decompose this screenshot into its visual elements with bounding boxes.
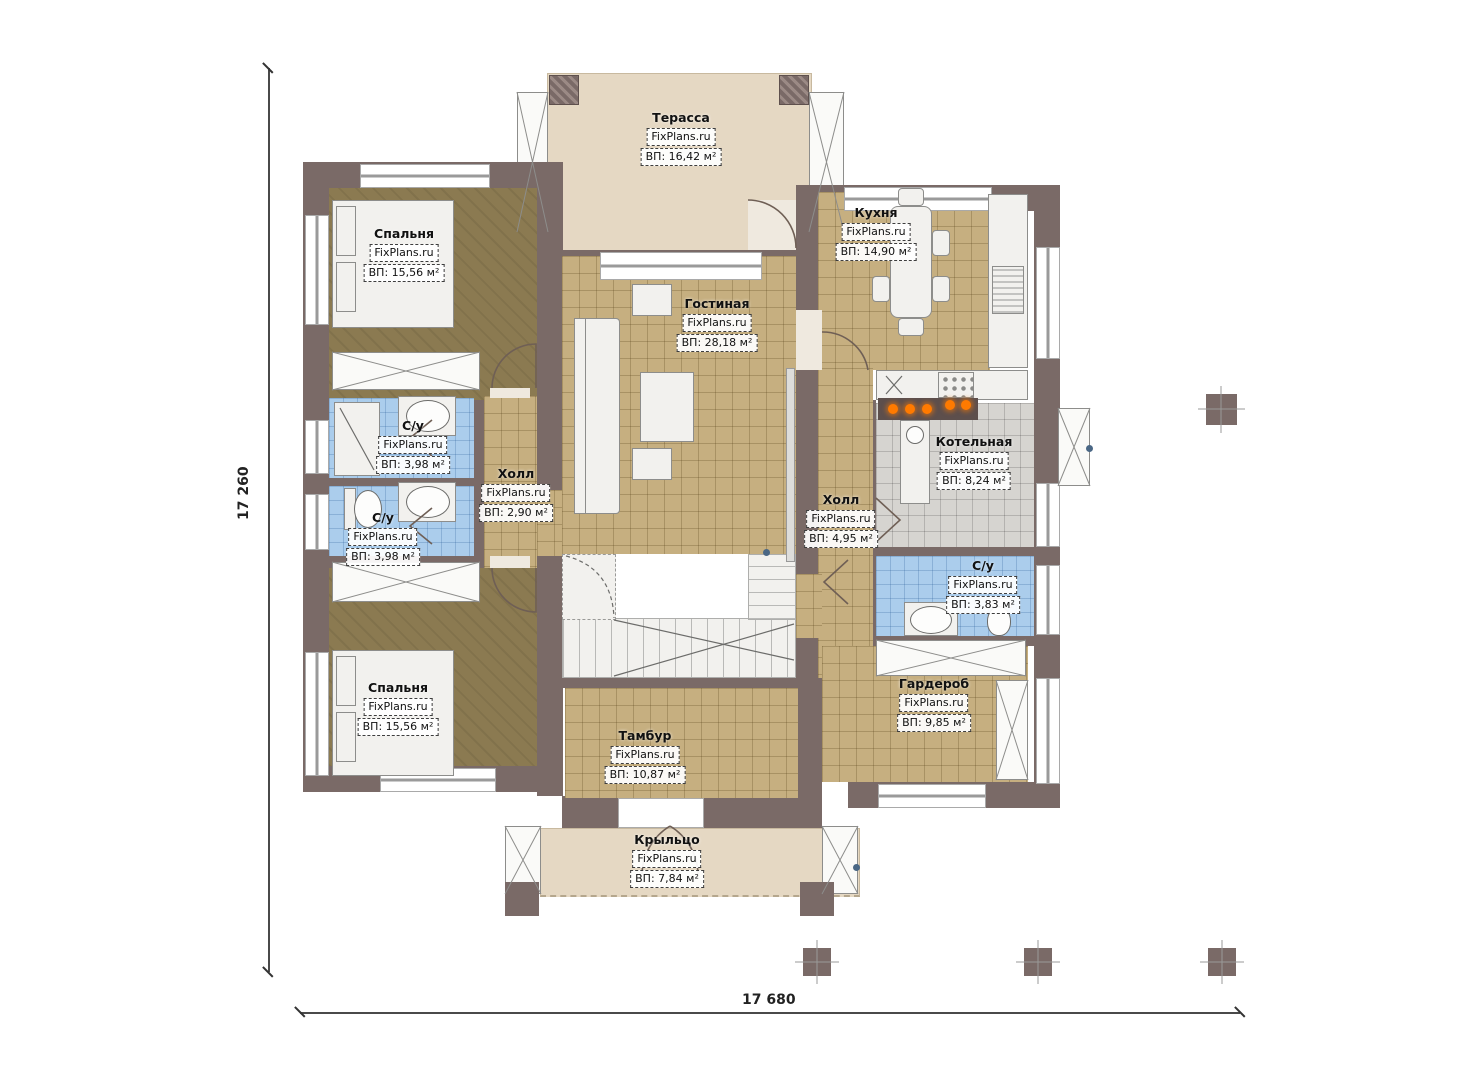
- room-brand: FixPlans.ru: [348, 528, 417, 546]
- chair-right1-kitchen: [932, 230, 950, 256]
- window-kitchen-right: [1036, 247, 1060, 359]
- door-entrance-gap: [618, 798, 704, 828]
- wardrobe-bedroom1: [332, 352, 480, 390]
- door-gap-bedroom1: [490, 388, 530, 398]
- room-brand: FixPlans.ru: [899, 694, 968, 712]
- window-boiler-right: [1036, 483, 1060, 547]
- room-name: Гардероб: [899, 676, 969, 692]
- wardrobe-bedroom2: [332, 562, 480, 602]
- window-bath2-left: [305, 494, 329, 550]
- label-tambur: Тамбур FixPlans.ru ВП: 10,87 м²: [605, 728, 686, 784]
- window-bedroom1-top: [360, 164, 490, 188]
- room-brand: FixPlans.ru: [948, 576, 1017, 594]
- room-area: ВП: 3,98 м²: [376, 456, 450, 474]
- room-area: ВП: 2,90 м²: [479, 504, 553, 522]
- room-name: С/у: [372, 510, 394, 526]
- dimension-left-value: 17 260: [236, 466, 252, 520]
- porch-pillar-right: [800, 882, 834, 916]
- pillow-bedroom2-b: [336, 712, 356, 762]
- coffee-table-living: [640, 372, 694, 442]
- room-name: Тамбур: [618, 728, 671, 744]
- room-area: ВП: 9,85 м²: [897, 714, 971, 732]
- room-area: ВП: 3,98 м²: [346, 548, 420, 566]
- window-wardrobe-bottom: [878, 784, 986, 808]
- label-bath2: С/у FixPlans.ru ВП: 3,98 м²: [346, 510, 420, 566]
- burner-4: [945, 400, 955, 410]
- room-name: С/у: [402, 418, 424, 434]
- room-name: Гостиная: [684, 296, 749, 312]
- room-name: Кухня: [854, 205, 897, 221]
- pillar-bottom-1: [803, 948, 831, 976]
- porch-pillar-left: [505, 882, 539, 916]
- room-brand: FixPlans.ru: [841, 223, 910, 241]
- room-name: Терасса: [652, 110, 710, 126]
- staircase-landing: [562, 554, 616, 620]
- label-hall-small: Холл FixPlans.ru ВП: 2,90 м²: [479, 466, 553, 522]
- ref-dot-porch: [853, 864, 860, 871]
- boiler-gauge: [906, 426, 924, 444]
- ref-dot-right-door: [1086, 445, 1093, 452]
- room-area: ВП: 14,90 м²: [836, 243, 917, 261]
- wardrobe-cabinet-right: [996, 680, 1028, 780]
- floor-plan-canvas: Терасса FixPlans.ru ВП: 16,42 м² Спальня…: [0, 0, 1474, 1080]
- opening-living-hall-right: [796, 574, 822, 638]
- chair-top-kitchen: [898, 188, 924, 206]
- room-name: Крыльцо: [634, 832, 699, 848]
- room-name: Холл: [498, 466, 535, 482]
- label-bedroom1: Спальня FixPlans.ru ВП: 15,56 м²: [364, 226, 445, 282]
- window-bedroom1-left: [305, 215, 329, 325]
- room-brand: FixPlans.ru: [632, 850, 701, 868]
- label-living: Гостиная FixPlans.ru ВП: 28,18 м²: [677, 296, 758, 352]
- room-area: ВП: 3,83 м²: [946, 596, 1020, 614]
- pillar-bottom-3: [1208, 948, 1236, 976]
- pillow-bedroom1-a: [336, 206, 356, 256]
- door-gap-terrace: [748, 200, 796, 250]
- window-bedroom2-left: [305, 652, 329, 776]
- room-brand: FixPlans.ru: [481, 484, 550, 502]
- label-hall-right: Холл FixPlans.ru ВП: 4,95 м²: [804, 492, 878, 548]
- label-porch: Крыльцо FixPlans.ru ВП: 7,84 м²: [630, 832, 704, 888]
- shower-bath1: [334, 402, 380, 476]
- staircase-lower-flight: [562, 618, 796, 678]
- dishwasher-kitchen: [938, 372, 974, 398]
- room-brand: FixPlans.ru: [646, 128, 715, 146]
- staircase-upper-flight: [748, 554, 796, 620]
- room-name: С/у: [972, 558, 994, 574]
- pillar-bottom-2: [1024, 948, 1052, 976]
- room-area: ВП: 15,56 м²: [358, 718, 439, 736]
- side-table-bottom-living: [632, 448, 672, 480]
- terrace-column-left: [549, 75, 579, 105]
- burner-3: [922, 404, 932, 414]
- burner-5: [961, 400, 971, 410]
- chair-right2-kitchen: [932, 276, 950, 302]
- room-name: Спальня: [374, 226, 434, 242]
- door-gap-bedroom2: [490, 556, 530, 568]
- burner-2: [905, 404, 915, 414]
- wall-boiler-bath3: [876, 546, 1034, 556]
- pillow-bedroom2-a: [336, 656, 356, 706]
- room-area: ВП: 8,24 м²: [937, 472, 1011, 490]
- label-bath1: С/у FixPlans.ru ВП: 3,98 м²: [376, 418, 450, 474]
- burner-1: [888, 404, 898, 414]
- wardrobe-cabinet-top: [876, 640, 1026, 676]
- room-area: ВП: 4,95 м²: [804, 530, 878, 548]
- chair-bottom-kitchen: [898, 318, 924, 336]
- room-area: ВП: 28,18 м²: [677, 334, 758, 352]
- window-bath3-right: [1036, 565, 1060, 635]
- room-area: ВП: 16,42 м²: [641, 148, 722, 166]
- side-table-top-living: [632, 284, 672, 316]
- room-brand: FixPlans.ru: [806, 510, 875, 528]
- window-wardrobe-right: [1036, 678, 1060, 784]
- label-boiler: Котельная FixPlans.ru ВП: 8,24 м²: [936, 434, 1013, 490]
- window-living-terrace: [600, 252, 762, 280]
- pillow-bedroom1-b: [336, 262, 356, 312]
- room-brand: FixPlans.ru: [363, 698, 432, 716]
- room-brand: FixPlans.ru: [939, 452, 1008, 470]
- room-area: ВП: 7,84 м²: [630, 870, 704, 888]
- room-name: Холл: [823, 492, 860, 508]
- tv-living: [786, 368, 795, 562]
- room-brand: FixPlans.ru: [610, 746, 679, 764]
- dimension-bottom-value: 17 680: [742, 992, 796, 1008]
- room-area: ВП: 10,87 м²: [605, 766, 686, 784]
- ref-dot-stairs: [763, 549, 770, 556]
- sofa-back-living: [574, 318, 586, 514]
- label-terrace: Терасса FixPlans.ru ВП: 16,42 м²: [641, 110, 722, 166]
- room-name: Спальня: [368, 680, 428, 696]
- door-gap-kitchen: [796, 310, 822, 370]
- label-bedroom2: Спальня FixPlans.ru ВП: 15,56 м²: [358, 680, 439, 736]
- room-brand: FixPlans.ru: [682, 314, 751, 332]
- dimension-line-bottom: [300, 1012, 1240, 1014]
- terrace-column-right: [779, 75, 809, 105]
- dimension-line-left: [268, 68, 270, 972]
- label-wardrobe: Гардероб FixPlans.ru ВП: 9,85 м²: [897, 676, 971, 732]
- chair-left-kitchen: [872, 276, 890, 302]
- label-bath3: С/у FixPlans.ru ВП: 3,83 м²: [946, 558, 1020, 614]
- pillar-right: [1206, 394, 1237, 425]
- window-bath1-left: [305, 420, 329, 474]
- room-area: ВП: 15,56 м²: [364, 264, 445, 282]
- room-name: Котельная: [936, 434, 1013, 450]
- fridge-kitchen: [992, 266, 1024, 314]
- room-brand: FixPlans.ru: [378, 436, 447, 454]
- label-kitchen: Кухня FixPlans.ru ВП: 14,90 м²: [836, 205, 917, 261]
- room-brand: FixPlans.ru: [369, 244, 438, 262]
